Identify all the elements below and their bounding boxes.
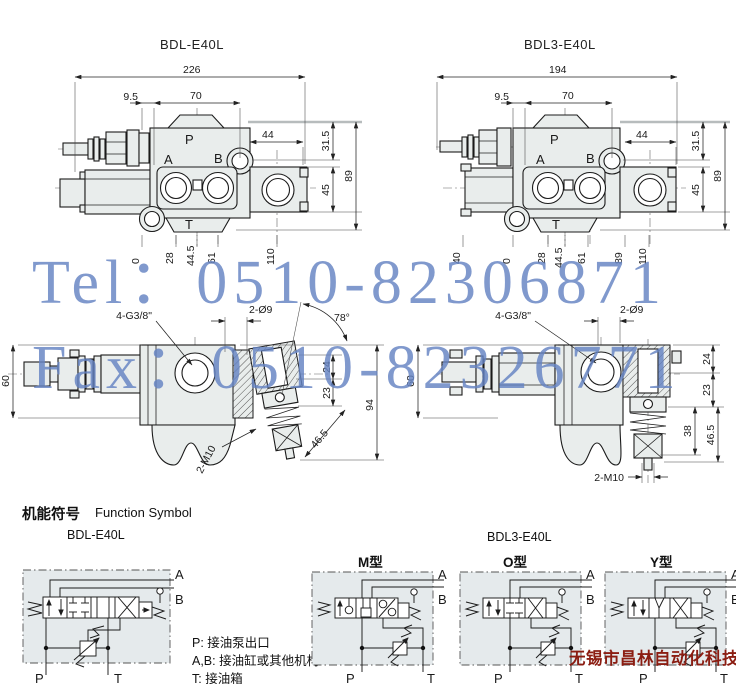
body-skirt <box>152 425 235 465</box>
function-symbol-m-type: A B P T <box>300 550 450 684</box>
relief-valve-assembly <box>630 397 666 470</box>
port-a-label: A <box>164 152 173 167</box>
port-p-label: P <box>185 132 194 147</box>
svg-text:60: 60 <box>0 375 12 387</box>
port-b-label: B <box>438 592 447 607</box>
p-port-boss <box>533 115 589 128</box>
svg-text:9.5: 9.5 <box>123 91 138 103</box>
mount-hole-bottom <box>510 212 525 227</box>
section-heading-en: Function Symbol <box>95 505 192 520</box>
svg-text:45: 45 <box>690 184 702 196</box>
port-t-label: T <box>185 217 193 232</box>
svg-text:23: 23 <box>701 384 713 396</box>
p-port-boss <box>168 115 224 128</box>
body-skirt <box>560 425 621 465</box>
svg-text:45: 45 <box>320 184 332 196</box>
port-p-label: P <box>639 671 648 684</box>
mount-hole-bottom <box>145 212 160 227</box>
svg-text:46.5: 46.5 <box>705 425 717 446</box>
port-p-label: P <box>346 671 355 684</box>
svg-text:70: 70 <box>190 90 202 102</box>
port-b-label: B <box>175 592 184 607</box>
port-t-label: T <box>720 671 728 684</box>
port-t-label: T <box>114 671 122 684</box>
function-symbol-bdl-e40l: A B P T <box>15 550 200 684</box>
svg-text:9.5: 9.5 <box>494 91 509 103</box>
port-p-label: P <box>35 671 44 684</box>
svg-text:24: 24 <box>701 353 713 365</box>
svg-text:70: 70 <box>562 90 574 102</box>
legend-t: T: 接油箱 <box>192 668 243 684</box>
svg-text:44: 44 <box>262 129 274 141</box>
section-heading-zh: 机能符号 <box>22 503 80 524</box>
svg-text:89: 89 <box>712 170 724 182</box>
legend-p: P: 接油泵出口 <box>192 632 270 651</box>
port-p-label: P <box>550 132 559 147</box>
datasheet-page: BDL-E40L BDL3-E40L <box>0 0 736 684</box>
port-t-label: T <box>427 671 435 684</box>
function-model-left: BDL-E40L <box>67 528 125 542</box>
port-b-label: B <box>731 592 736 607</box>
company-stamp: 无锡市昌林自动化科技 <box>569 645 736 669</box>
port-b-label: B <box>586 151 595 166</box>
port-a-label: A <box>536 152 545 167</box>
watermark-fax: Fax：0510-82326771 <box>32 337 682 399</box>
relief-valve-symbol <box>393 642 407 655</box>
port-a-label: A <box>731 567 736 582</box>
svg-text:38: 38 <box>682 425 694 437</box>
port-p-label: P <box>494 671 503 684</box>
svg-text:31.5: 31.5 <box>690 131 702 152</box>
t-port-boss <box>166 218 230 232</box>
port-t-label: T <box>575 671 583 684</box>
svg-text:89: 89 <box>343 170 355 182</box>
svg-text:31.5: 31.5 <box>320 131 332 152</box>
port-b-label: B <box>214 151 223 166</box>
relief-valve-symbol <box>541 642 555 655</box>
t-port-boss <box>533 218 597 232</box>
port-a-label: A <box>438 567 447 582</box>
watermark-tel: Tel：0510-82306871 <box>32 252 667 314</box>
port-t-label: T <box>552 217 560 232</box>
svg-text:194: 194 <box>549 64 567 76</box>
port-a-label: A <box>175 567 184 582</box>
function-model-right: BDL3-E40L <box>487 530 552 544</box>
svg-text:44: 44 <box>636 129 648 141</box>
bolt-callout: 2-M10 <box>594 472 624 484</box>
svg-text:226: 226 <box>183 64 201 76</box>
